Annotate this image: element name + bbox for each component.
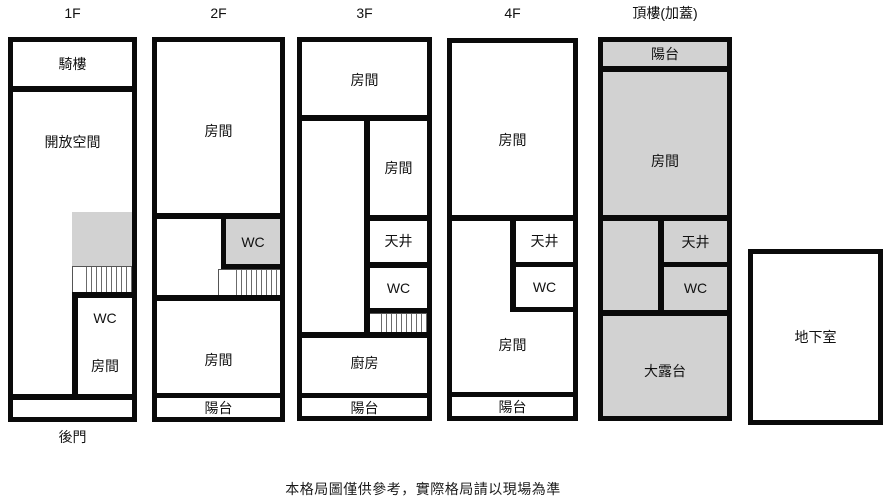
unit-4f: 房間 天井 WC 房間 陽台 [447, 38, 578, 421]
room-label-balcony: 陽台 [452, 399, 573, 415]
stairs-hatch [381, 314, 427, 332]
room-label-room: 房間 [78, 358, 132, 374]
room-box-wc: WC [221, 219, 280, 269]
stairs [72, 266, 132, 292]
wall [13, 394, 132, 400]
wall-divider [364, 121, 370, 332]
unit-basement: 地下室 [748, 249, 883, 425]
wall [302, 332, 427, 338]
wall [370, 215, 427, 221]
wall [664, 262, 727, 267]
room-label-open-space: 開放空間 [13, 134, 132, 150]
wall [510, 307, 573, 312]
floor-plan-diagram: 1F 2F 3F 4F 頂樓(加蓋) 騎樓 開放空間 WC 房間 後門 房間 W… [0, 0, 888, 501]
room-label-balcony: 陽台 [157, 400, 280, 416]
room-label-arcade: 騎樓 [13, 56, 132, 72]
room-label-room-top: 房間 [302, 72, 427, 88]
wall [452, 392, 573, 397]
room-label-room-top: 房間 [157, 123, 280, 139]
wall [157, 295, 280, 301]
room-label-wc: WC [516, 279, 573, 295]
room-label-kitchen: 廚房 [302, 355, 427, 371]
wall [370, 262, 427, 268]
room-label-balcony: 陽台 [302, 400, 427, 416]
floor-title-2f: 2F [152, 5, 285, 21]
stairs [370, 313, 427, 332]
floor-title-1f: 1F [8, 5, 137, 21]
wall [302, 393, 427, 398]
stairs [218, 269, 280, 295]
back-door-label: 後門 [8, 429, 137, 445]
room-label-terrace: 大露台 [603, 363, 727, 379]
room-label-lightwell: 天井 [664, 234, 727, 250]
floor-title-roof: 頂樓(加蓋) [598, 5, 732, 21]
room-box-wc-room: WC 房間 [72, 292, 132, 394]
room-label-wc: WC [78, 310, 132, 326]
wall [603, 215, 727, 221]
room-label-basement: 地下室 [795, 327, 837, 347]
room-label-lightwell: 天井 [516, 233, 573, 249]
room-label-room-right: 房間 [370, 160, 427, 176]
stairs-hatch [86, 267, 132, 292]
wall [603, 66, 727, 72]
wall [516, 262, 573, 267]
floor-title-4f: 4F [447, 5, 578, 21]
wall [603, 310, 727, 316]
room-label-wc: WC [370, 280, 427, 296]
room-label-wc: WC [241, 234, 264, 250]
unit-2f: 房間 WC 房間 陽台 [152, 37, 285, 422]
room-label-room-top: 房間 [452, 132, 573, 148]
room-label-room-bottom: 房間 [157, 352, 280, 368]
unit-roof: 陽台 房間 天井 WC 大露台 [598, 37, 732, 421]
room-label-wc: WC [664, 280, 727, 296]
room-label-room-bottom: 房間 [452, 337, 573, 353]
floor-title-3f: 3F [297, 5, 432, 21]
room-label-balcony-top: 陽台 [603, 46, 727, 62]
disclaimer-text: 本格局圖僅供參考，實際格局請以現場為準 [0, 479, 846, 499]
shaded-area [72, 212, 132, 266]
unit-3f: 房間 房間 天井 WC 廚房 陽台 [297, 37, 432, 421]
room-label-room: 房間 [603, 153, 727, 169]
wall [13, 86, 132, 92]
stairs-hatch [236, 270, 280, 295]
unit-1f: 騎樓 開放空間 WC 房間 [8, 37, 137, 422]
room-label-lightwell: 天井 [370, 233, 427, 249]
wall [157, 393, 280, 398]
